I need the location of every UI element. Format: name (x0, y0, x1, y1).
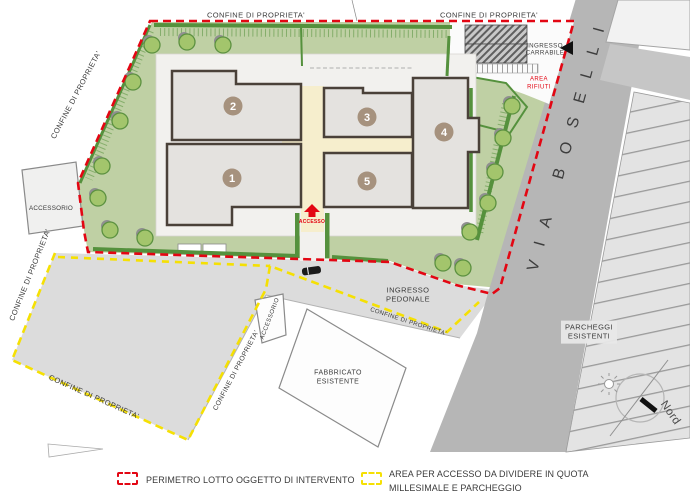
building-4 (413, 78, 479, 208)
leader-line (352, 0, 357, 21)
legend-swatch-access-area (361, 472, 382, 485)
hedge-strip (325, 213, 330, 258)
hatched-parking-row (465, 25, 527, 44)
area-rifiuti-label: AREA RIFIUTI (527, 77, 551, 92)
site-plan: 1 2 3 4 5 (0, 0, 690, 500)
ingresso-pedonale-label: INGRESSO PEDONALE (386, 286, 430, 305)
accessorio-left-building (22, 162, 83, 234)
parcheggi-esistenti-label: PARCHEGGI ESISTENTI (561, 321, 617, 344)
fabbricato-esistente-label: FABBRICATO ESISTENTE (314, 369, 362, 387)
accessorio-left-label: ACCESSORIO (29, 205, 73, 213)
boundary-sliver (48, 444, 103, 457)
boundary-label-top-left: CONFINE DI PROPRIETA' (207, 10, 305, 19)
building-number: 1 (229, 173, 235, 185)
corner-block (606, 0, 690, 50)
boundary-label-top-right: CONFINE DI PROPRIETA' (440, 10, 538, 19)
building-number: 2 (230, 101, 236, 113)
legend-swatch-perimeter (117, 472, 138, 485)
building-number: 4 (441, 127, 448, 139)
ingresso-carrabile-label: INGRESSO CARRABILE (526, 43, 565, 58)
building-number: 3 (364, 112, 370, 124)
site-plan-drawing: 1 2 3 4 5 (0, 0, 690, 500)
accesso-label: ACCESSO (299, 219, 325, 225)
building-number: 5 (364, 176, 370, 188)
legend-label-perimeter: PERIMETRO LOTTO OGGETTO DI INTERVENTO (146, 474, 355, 488)
legend-label-access-area: AREA PER ACCESSO DA DIVIDERE IN QUOTA MI… (389, 468, 589, 495)
